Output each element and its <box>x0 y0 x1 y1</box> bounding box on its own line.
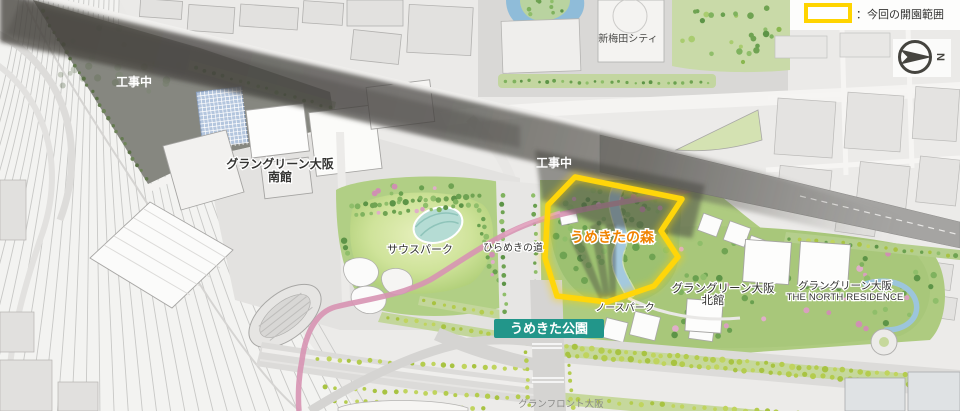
svg-text:北館: 北館 <box>702 293 725 307</box>
svg-text:新梅田シティ: 新梅田シティ <box>598 32 657 45</box>
svg-text:サウスパーク: サウスパーク <box>387 243 453 256</box>
svg-text:THE NORTH RESIDENCE: THE NORTH RESIDENCE <box>786 292 903 303</box>
svg-text:N: N <box>934 53 946 61</box>
svg-text:ひらめきの道: ひらめきの道 <box>483 241 543 254</box>
svg-text:グラングリーン大阪: グラングリーン大阪 <box>226 156 334 171</box>
svg-text:グラングリーン大阪: グラングリーン大阪 <box>798 279 892 292</box>
svg-text:ノースパーク: ノースパーク <box>595 302 655 314</box>
svg-text:うめきた公園: うめきた公園 <box>510 321 588 336</box>
svg-text:グラングリーン大阪: グラングリーン大阪 <box>672 281 775 295</box>
svg-text:工事中: 工事中 <box>116 74 152 89</box>
svg-text:：今回の開園範囲: ：今回の開園範囲 <box>856 7 944 21</box>
svg-text:グランフロント大阪: グランフロント大阪 <box>518 398 604 410</box>
svg-text:うめきたの森: うめきたの森 <box>570 229 655 245</box>
svg-text:工事中: 工事中 <box>536 155 572 170</box>
svg-text:南館: 南館 <box>268 169 292 184</box>
